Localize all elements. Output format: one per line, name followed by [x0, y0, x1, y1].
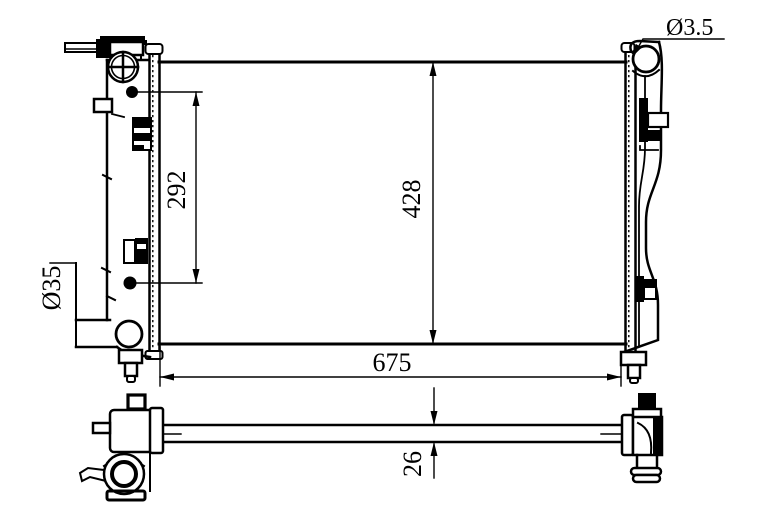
- dim-overall-width: 675: [160, 347, 621, 386]
- dim-core-height: 428: [397, 62, 437, 344]
- dim-overall-width-label: 675: [373, 348, 412, 377]
- left-side-plate: [146, 44, 163, 359]
- dim-outlet-pipe-diameter: Ø35: [37, 263, 76, 347]
- dim-mounting-span-label: 292: [162, 171, 191, 210]
- bottom-view: [80, 393, 662, 500]
- dim-core-height-label: 428: [397, 180, 426, 219]
- front-view: [65, 36, 668, 383]
- left-tank-brackets: [94, 99, 151, 264]
- drain-plug-left: [119, 350, 142, 382]
- dim-outlet-pipe-label: Ø35: [37, 266, 66, 311]
- drain-plug-right: [621, 352, 646, 383]
- radiator-core: [159, 62, 626, 344]
- radiator-engineering-drawing: 428 292 675 Ø3.5: [0, 0, 768, 516]
- mounting-hole-upper: [126, 86, 138, 98]
- right-tank: [624, 41, 668, 352]
- bottom-view-left-tank: [80, 395, 163, 500]
- right-side-plate: [622, 43, 636, 355]
- radiator-cap-front: [108, 52, 138, 82]
- bottom-view-right-tank: [622, 393, 662, 482]
- dim-inlet-port-label: Ø3.5: [666, 15, 713, 41]
- outlet-port: [116, 321, 142, 347]
- dim-core-thickness-label: 26: [398, 451, 427, 477]
- dim-core-thickness: 26: [398, 388, 438, 478]
- technical-drawing-canvas: 428 292 675 Ø3.5: [0, 0, 768, 516]
- bottom-view-core: [163, 425, 622, 442]
- mounting-hole-lower: [124, 277, 137, 290]
